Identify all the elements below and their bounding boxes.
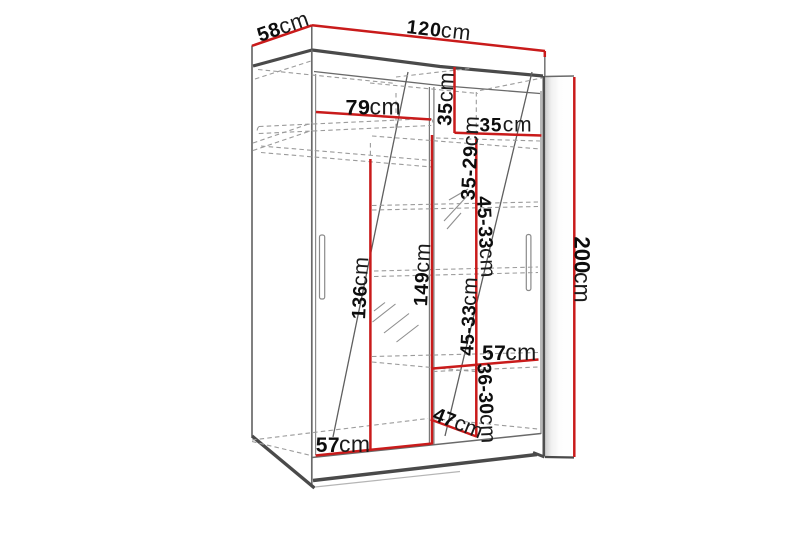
svg-text:cm: cm xyxy=(410,242,436,273)
svg-text:cm: cm xyxy=(458,276,482,306)
svg-text:136: 136 xyxy=(348,285,372,320)
svg-text:120: 120 xyxy=(405,16,443,42)
svg-text:45-33: 45-33 xyxy=(472,196,497,250)
svg-text:cm: cm xyxy=(348,256,374,287)
svg-text:cm: cm xyxy=(339,431,370,457)
svg-text:35: 35 xyxy=(434,102,457,126)
svg-text:cm: cm xyxy=(475,247,501,278)
svg-text:cm: cm xyxy=(440,18,473,45)
svg-text:cm: cm xyxy=(505,339,536,365)
svg-text:35-29: 35-29 xyxy=(458,145,483,201)
svg-text:57: 57 xyxy=(316,434,340,457)
svg-text:36-30: 36-30 xyxy=(473,363,498,415)
svg-text:149: 149 xyxy=(410,271,434,307)
svg-text:45-33: 45-33 xyxy=(457,304,481,356)
svg-text:cm: cm xyxy=(570,272,596,303)
svg-text:cm: cm xyxy=(503,114,533,137)
svg-text:200: 200 xyxy=(570,237,595,274)
svg-text:79: 79 xyxy=(346,96,371,120)
svg-text:cm: cm xyxy=(432,71,459,103)
svg-text:cm: cm xyxy=(370,94,402,120)
svg-text:57: 57 xyxy=(482,342,506,365)
svg-text:cm: cm xyxy=(457,115,484,147)
